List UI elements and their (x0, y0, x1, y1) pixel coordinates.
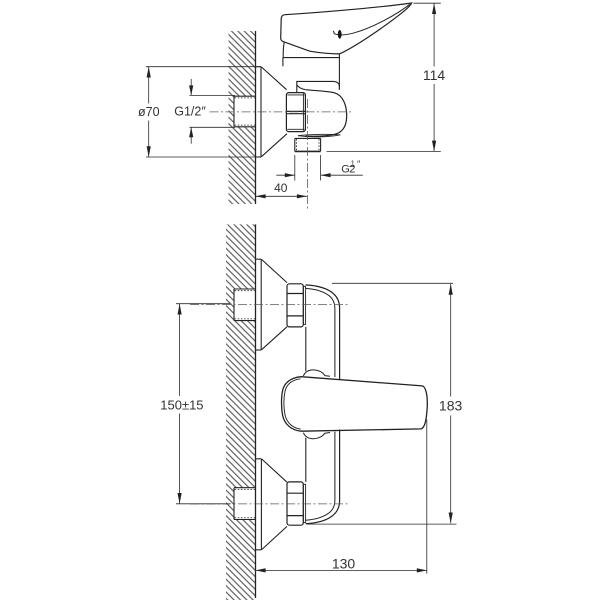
svg-text:″: ″ (357, 159, 361, 169)
svg-text:40: 40 (274, 181, 288, 195)
svg-text:130: 130 (332, 555, 356, 571)
svg-text:114: 114 (423, 67, 446, 83)
svg-text:ø70: ø70 (138, 105, 160, 119)
svg-text:150±15: 150±15 (160, 398, 203, 413)
svg-text:G1/2″: G1/2″ (174, 105, 206, 119)
svg-text:183: 183 (439, 398, 463, 414)
